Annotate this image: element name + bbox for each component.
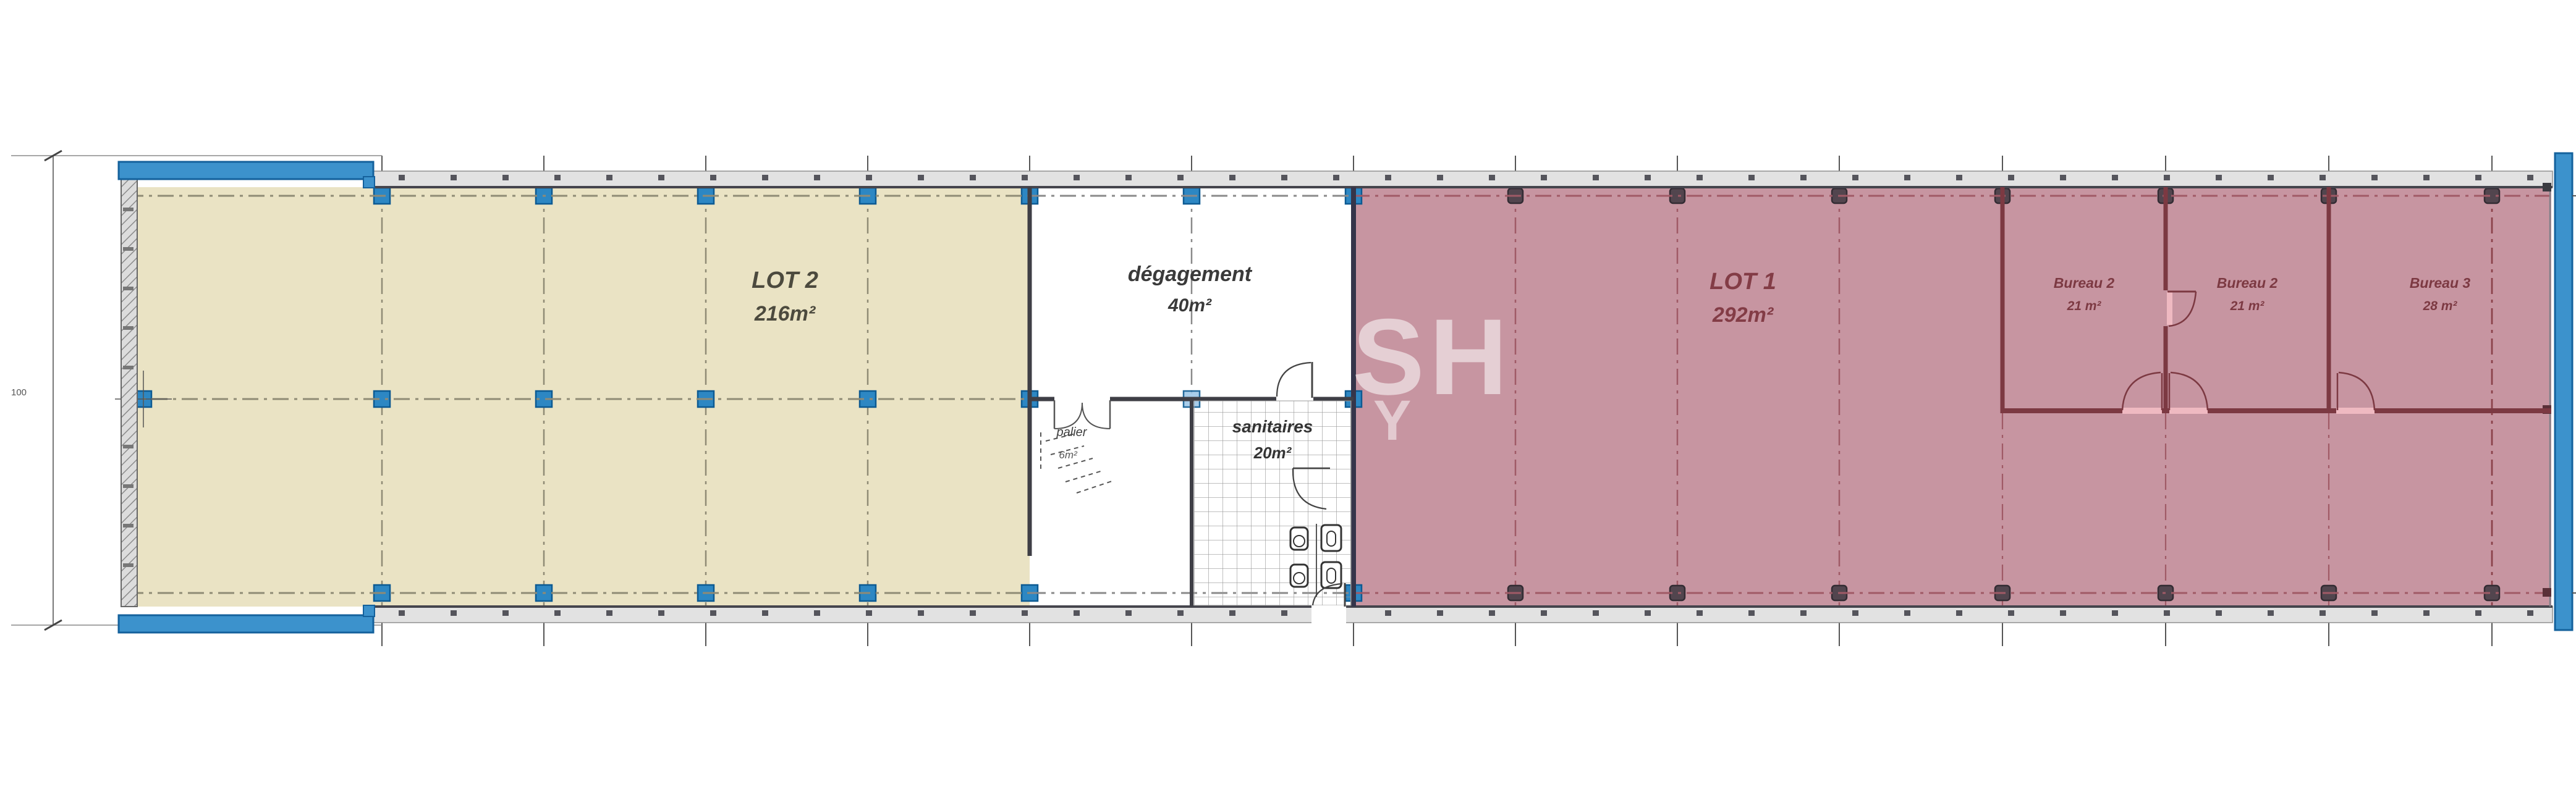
window-mullion-tick (399, 175, 405, 180)
window-mullion-tick (1645, 610, 1651, 616)
window-mullion-tick (1385, 175, 1391, 180)
window-mullion-tick (1645, 175, 1651, 180)
window-mullion-tick (970, 610, 976, 616)
sanitaires-area: 20m² (1253, 444, 1292, 462)
window-mullion-tick (451, 610, 457, 616)
wall-tick (123, 445, 133, 448)
palier-label: palier (1056, 426, 1088, 439)
window-mullion-tick (762, 175, 768, 180)
window-mullion-tick (710, 610, 716, 616)
window-mullion-tick (2320, 610, 2326, 616)
window-mullion-tick (502, 610, 509, 616)
window-mullion-tick (1022, 175, 1028, 180)
palier-area: 6m² (1059, 449, 1078, 461)
window-mullion-tick (2268, 175, 2274, 180)
window-mullion-tick (1022, 610, 1028, 616)
window-mullion-tick (1125, 175, 1132, 180)
window-mullion-tick (814, 175, 820, 180)
blue-wall-right (2555, 153, 2572, 630)
window-mullion-tick (658, 175, 664, 180)
window-mullion-tick (1437, 610, 1443, 616)
window-mullion-tick (2216, 175, 2222, 180)
window-mullion-tick (1800, 175, 1807, 180)
wall-tick (123, 563, 133, 567)
window-mullion-tick (1593, 175, 1599, 180)
window-mullion-tick (918, 175, 924, 180)
window-mullion-tick (606, 610, 612, 616)
bureau2a-area: 21 m² (2067, 299, 2102, 313)
window-mullion-tick (399, 610, 405, 616)
bottom-window-band (373, 607, 2553, 623)
wall-tick (123, 366, 133, 369)
window-mullion-tick (1489, 175, 1495, 180)
window-mullion-tick (2527, 610, 2533, 616)
window-mullion-tick (451, 175, 457, 180)
degagement-area: 40m² (1167, 295, 1212, 316)
window-mullion-tick (1541, 610, 1547, 616)
urinal-icon (1321, 525, 1341, 551)
window-mullion-tick (866, 610, 872, 616)
window-mullion-tick (710, 175, 716, 180)
lot2-area: 216m² (754, 302, 816, 326)
window-mullion-tick (1697, 610, 1703, 616)
window-mullion-tick (2268, 610, 2274, 616)
window-mullion-tick (1177, 610, 1184, 616)
window-mullion-tick (2060, 175, 2066, 180)
window-mullion-tick (918, 610, 924, 616)
window-mullion-tick (762, 610, 768, 616)
lot2-label: LOT 2 (752, 267, 818, 293)
wall-tick (123, 208, 133, 211)
wall-tick (123, 326, 133, 330)
window-mullion-tick (2112, 610, 2118, 616)
window-mullion-tick (2216, 610, 2222, 616)
window-mullion-tick (1593, 610, 1599, 616)
floor-plan-svg: 100 (0, 0, 2576, 803)
window-mullion-tick (1852, 175, 1858, 180)
exit-door-opening (1311, 605, 1346, 624)
palier-double-door-swing (1054, 400, 1110, 429)
degagement-label: dégagement (1128, 263, 1253, 286)
window-mullion-tick (2475, 175, 2481, 180)
window-mullion-tick (970, 175, 976, 180)
window-mullion-tick (2008, 175, 2014, 180)
bureau2a-label: Bureau 2 (2054, 275, 2115, 291)
window-mullion-tick (554, 610, 561, 616)
window-mullion-tick (2320, 175, 2326, 180)
toilet-icon (1290, 528, 1308, 550)
window-mullion-tick (2371, 610, 2378, 616)
window-mullion-tick (2423, 175, 2430, 180)
left-exterior-wall (121, 179, 137, 607)
window-mullion-tick (1177, 175, 1184, 180)
dimension-label: 100 (11, 387, 27, 398)
window-mullion-tick (1125, 610, 1132, 616)
window-mullion-tick (2527, 175, 2533, 180)
bureau3-label: Bureau 3 (2410, 275, 2471, 291)
sanitaires-label: sanitaires (1232, 417, 1313, 436)
window-mullion-tick (1281, 610, 1287, 616)
window-mullion-tick (1437, 175, 1443, 180)
window-mullion-tick (814, 610, 820, 616)
window-mullion-tick (2060, 610, 2066, 616)
window-mullion-tick (1229, 610, 1235, 616)
window-mullion-tick (1074, 175, 1080, 180)
sanitaires-door-swing (1277, 362, 1312, 398)
window-mullion-tick (2008, 610, 2014, 616)
window-mullion-tick (1904, 610, 1910, 616)
stairs-sketch (1041, 432, 1114, 493)
window-mullion-tick (1697, 175, 1703, 180)
window-mullion-tick (1748, 610, 1755, 616)
wall-tick (123, 524, 133, 528)
window-mullion-tick (502, 175, 509, 180)
window-mullion-tick (2164, 610, 2170, 616)
blue-wall-bottom-step (363, 605, 375, 616)
wall-tick (123, 484, 133, 488)
window-mullion-tick (1385, 610, 1391, 616)
window-mullion-tick (606, 175, 612, 180)
window-mullion-tick (1904, 175, 1910, 180)
blue-wall-top-left (119, 162, 373, 179)
window-mullion-tick (658, 610, 664, 616)
window-mullion-tick (2475, 610, 2481, 616)
top-window-band (373, 171, 2553, 187)
window-mullion-tick (866, 175, 872, 180)
toilet-icon (1290, 565, 1308, 587)
bureau3-area: 28 m² (2423, 299, 2458, 313)
blue-wall-top-step (363, 177, 375, 188)
window-mullion-tick (1333, 175, 1339, 180)
lot2-area (137, 187, 1030, 607)
bureau2b-area: 21 m² (2230, 299, 2265, 313)
window-mullion-tick (1800, 610, 1807, 616)
wall-tick (123, 247, 133, 251)
blue-wall-bottom-left (119, 615, 373, 633)
lot1-area: 292m² (1712, 303, 1774, 327)
window-mullion-tick (1229, 175, 1235, 180)
window-mullion-tick (2423, 610, 2430, 616)
wall-tick (123, 287, 133, 290)
window-mullion-tick (1852, 610, 1858, 616)
window-mullion-tick (2164, 175, 2170, 180)
window-mullion-tick (1281, 175, 1287, 180)
floor-plan-page: 100 (0, 0, 2576, 803)
window-mullion-tick (1748, 175, 1755, 180)
lot1-label: LOT 1 (1710, 269, 1776, 295)
window-mullion-tick (2112, 175, 2118, 180)
window-mullion-tick (1541, 175, 1547, 180)
window-mullion-tick (554, 175, 561, 180)
window-mullion-tick (1489, 610, 1495, 616)
window-mullion-tick (2371, 175, 2378, 180)
watermark-text: Y (1373, 389, 1411, 452)
window-mullion-tick (1956, 175, 1962, 180)
window-mullion-tick (1956, 610, 1962, 616)
bureau2b-label: Bureau 2 (2217, 275, 2278, 291)
window-mullion-tick (1074, 610, 1080, 616)
